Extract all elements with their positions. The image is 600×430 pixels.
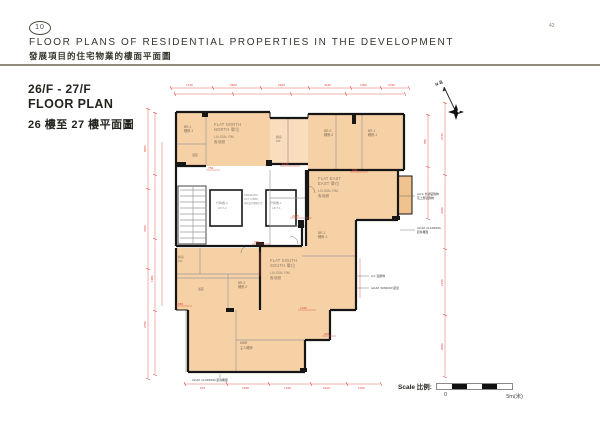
dim-bottom-4: 3125 — [323, 386, 330, 390]
room-bath-north-zh: 浴室 — [192, 152, 198, 157]
annotation-cladding-zh: 鋁質覆面 — [417, 230, 428, 234]
dim-bottom-5: 1150 — [358, 386, 365, 390]
dim-right-1: 2725 — [440, 133, 444, 140]
room-br1-south-zh: 睡房-1 — [318, 234, 327, 239]
dim-bottom-2: 2150 — [242, 386, 249, 390]
dim-right-3: 2150 — [440, 279, 444, 286]
room-br1-east-zh: 睡房-1 — [368, 132, 377, 137]
dim-top-1: 1745 — [186, 83, 193, 87]
lift-2-label: LIFT-2 — [218, 206, 227, 210]
scale-zero: 0 — [444, 392, 447, 398]
page-title: FLOOR PLANS OF RESIDENTIAL PROPERTIES IN… — [29, 37, 454, 48]
dim-top-2: 3650 — [230, 83, 237, 87]
room-kit-north: KIT. — [276, 139, 281, 143]
header-divider — [0, 64, 600, 66]
north-arrow-label: N 北 — [434, 78, 444, 87]
dim-top-4: 3125 — [324, 83, 331, 87]
scale-label: Scale 比例: — [398, 381, 432, 391]
floor-plan-drawing: 升降機-2 LIFT-2 升降機-1 LIFT-1 FIREMAN'S LIFT… — [140, 78, 470, 398]
flat-east-room-zh: 客/飯廳 — [318, 193, 330, 198]
dim-top-3: 2150 — [278, 83, 285, 87]
flat-north-room: LIV./DIN. RM. — [214, 135, 235, 139]
dim-right-4: 850 — [423, 139, 427, 144]
dim-right-5: 8250 — [440, 343, 444, 350]
floor-plan-label: FLOOR PLAN — [28, 97, 134, 111]
lobby-label-2: LIFT LOBBY — [244, 197, 259, 201]
dim-left-2: 3150 — [143, 225, 147, 232]
dim-inner-8: 525 — [324, 332, 329, 336]
lift-1: 升降機-1 LIFT-1 — [266, 190, 296, 226]
lobby-label-1: FIREMAN'S — [244, 193, 258, 197]
room-br2-east-zh: 睡房-2 — [324, 132, 333, 137]
room-mbr-zh: 主人睡房 — [240, 345, 253, 350]
dim-inner-4: 2025 — [292, 214, 299, 218]
dim-left-1: 8250 — [143, 145, 147, 152]
dim-inner-7: 1345 — [300, 306, 307, 310]
flat-south-room-zh: 客/飯廳 — [270, 275, 282, 280]
room-br2-south-zh: 睡房-2 — [238, 284, 247, 289]
staircase — [178, 186, 206, 244]
dim-inner-3: 900 — [352, 168, 357, 172]
north-arrow: N 北 — [434, 78, 464, 120]
flat-south-room: LIV./DIN. RM. — [270, 271, 291, 275]
floor-range-zh: 26 樓至 27 樓平面圖 — [28, 116, 134, 132]
room-bath-south-zh: 浴室 — [198, 286, 204, 291]
page-subtitle-zh: 發展項目的住宅物業的樓面平面圖 — [29, 50, 172, 62]
flat-north-room-zh: 客/飯廳 — [214, 139, 226, 144]
page-number: 42 — [549, 23, 555, 29]
scale-bar: Scale 比例: 0 5m(米) — [398, 381, 573, 399]
lift-1-label-zh: 升降機-1 — [270, 200, 282, 205]
flat-south-name-zh: SOUTH 單位 — [270, 262, 295, 268]
dim-inner-5: 675 — [254, 240, 259, 244]
dim-inner-6: 865 — [178, 302, 183, 306]
dim-top-5: 1050 — [360, 83, 367, 87]
dim-bottom-1: 975 — [200, 386, 205, 390]
flat-north-name-zh: NORTH 單位 — [214, 126, 239, 132]
lift-2-label-zh: 升降機-2 — [216, 200, 228, 205]
annotation-aff-2: 及上層裝飾物 — [417, 196, 434, 200]
flat-east-name-zh: EAST 單位 — [318, 180, 339, 186]
dim-top-6: 2750 — [388, 83, 395, 87]
dim-inner-2: 1125 — [282, 162, 289, 166]
room-br1-north-zh: 睡房-1 — [184, 128, 193, 133]
dim-bottom-3: 1345 — [284, 386, 291, 390]
lift-2: 升降機-2 LIFT-2 — [210, 190, 242, 226]
page: 10 FLOOR PLANS OF RESIDENTIAL PROPERTIES… — [0, 0, 600, 430]
flat-east-room: LIV./DIN. RM. — [318, 189, 339, 193]
annotation-af: A.F. 裝飾物 — [371, 274, 385, 278]
floor-heading: 26/F - 27/F FLOOR PLAN 26 樓至 27 樓平面圖 — [28, 82, 134, 132]
lift-1-label: LIFT-1 — [272, 206, 281, 210]
scale-bar-graphic — [436, 383, 513, 390]
floor-range: 26/F - 27/F — [28, 82, 134, 96]
dim-left-3: 2750 — [143, 321, 147, 328]
dim-right-2: 3150 — [440, 207, 444, 214]
room-kit-south: KIT. — [178, 259, 183, 263]
annotation-cladding-bottom: ALUM. CLADDING 鋁質覆面 — [192, 378, 228, 382]
room-mbr: MBR — [240, 341, 248, 345]
section-number-badge: 10 — [29, 21, 51, 35]
annotation-window: ALUM. WINDOW 鋁窗 — [371, 286, 399, 290]
dim-inner-1: 750 — [208, 166, 213, 170]
scale-max: 5m(米) — [506, 392, 523, 400]
dim-left-4: 1950 — [150, 275, 154, 282]
